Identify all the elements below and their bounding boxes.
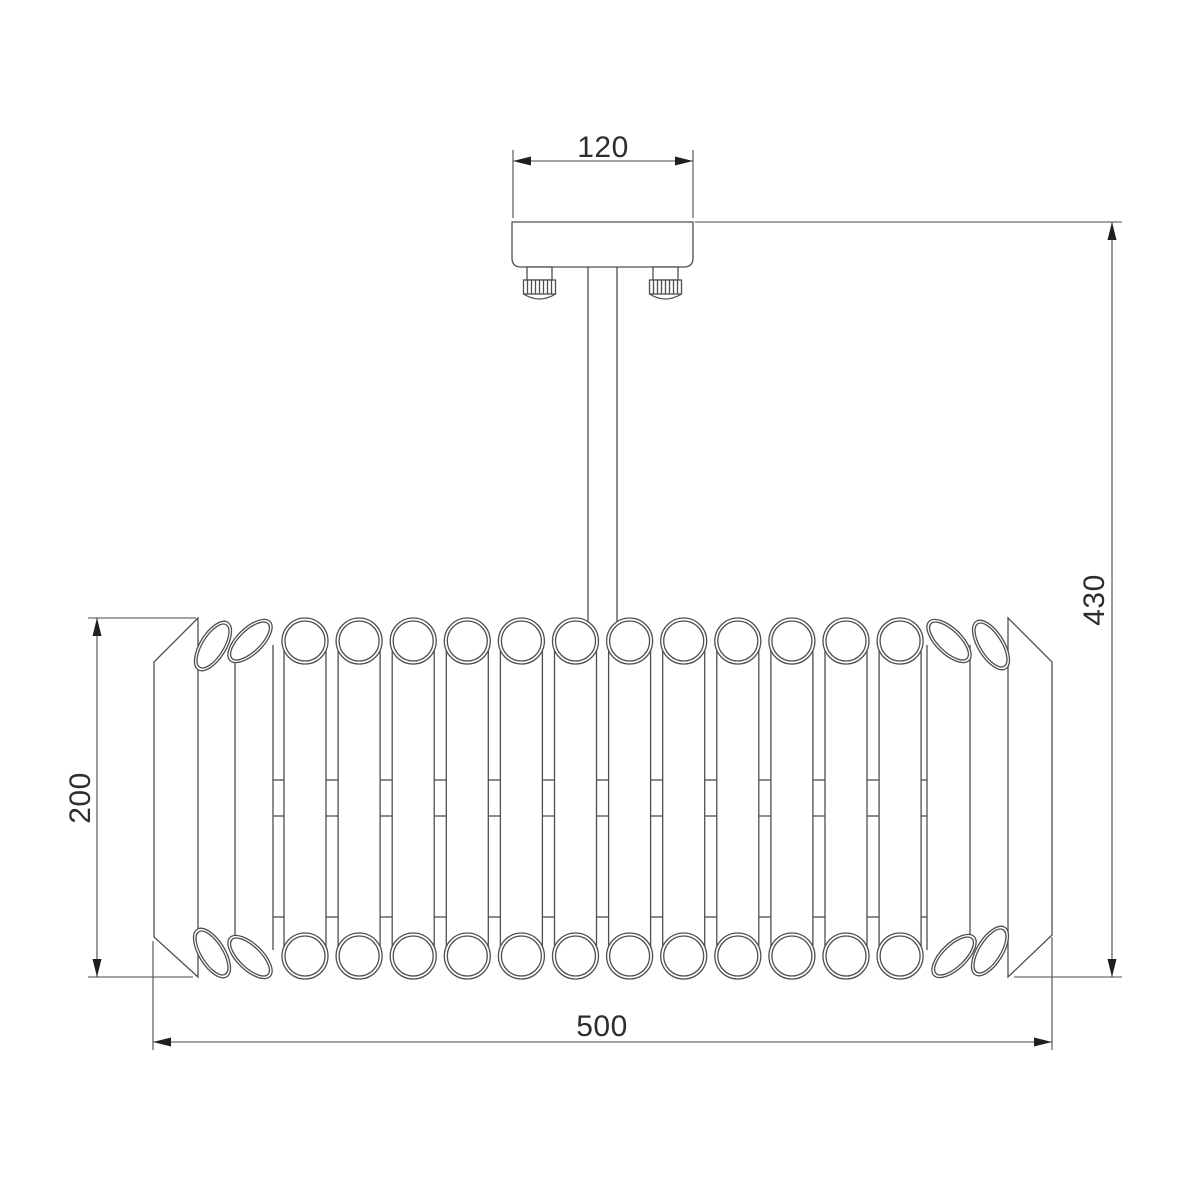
- tilted-bottom-rim-outer: [221, 928, 279, 986]
- crystal-shade-body: [154, 612, 1052, 986]
- tube-bottom-rim-outer: [607, 933, 653, 979]
- tube-top-rim-outer: [498, 618, 544, 664]
- tube-bottom-rim-outer: [823, 933, 869, 979]
- tube-bottom-rim-outer: [498, 933, 544, 979]
- tube-top-rim-outer: [769, 618, 815, 664]
- screw-cap-bottom: [524, 294, 556, 299]
- chandelier-dimension-drawing: 120 430 200 500: [0, 0, 1200, 1200]
- dimension-label-body-height: 200: [64, 772, 97, 824]
- tube-bottom-rim-outer: [282, 933, 328, 979]
- tube-bottom-rim-outer: [444, 933, 490, 979]
- dimension-lines: [88, 150, 1122, 1050]
- dimension-arrowhead: [1108, 222, 1117, 240]
- dimension-arrowhead: [675, 157, 693, 166]
- dimension-label-total-height: 430: [1078, 574, 1111, 626]
- screw-neck: [527, 267, 552, 280]
- dimension-label-canopy-width: 120: [577, 131, 629, 164]
- screw-cap-bottom: [650, 294, 682, 299]
- tube-top-rim-outer: [553, 618, 599, 664]
- mounting-screw: [524, 267, 556, 299]
- tube-bottom-rim-outer: [390, 933, 436, 979]
- tube-top-rim-outer: [336, 618, 382, 664]
- tube-top-rim-outer: [390, 618, 436, 664]
- screw-neck: [653, 267, 678, 280]
- side-panel-left: [154, 618, 198, 977]
- side-panel-right: [1008, 618, 1052, 977]
- tube-top-rim-outer: [607, 618, 653, 664]
- ceiling-canopy: [512, 222, 693, 267]
- technical-drawing-svg: 120 430 200 500: [0, 0, 1200, 1200]
- dimension-arrowhead: [1034, 1038, 1052, 1047]
- canopy-plate: [512, 222, 693, 267]
- tube-top-rim-outer: [444, 618, 490, 664]
- dimension-arrowhead: [153, 1038, 171, 1047]
- tube-bottom-rim-outer: [769, 933, 815, 979]
- dimension-arrowhead: [1108, 959, 1117, 977]
- tube-top-rim-outer: [715, 618, 761, 664]
- tube-bottom-rim-outer: [877, 933, 923, 979]
- tube-top-rim-outer: [823, 618, 869, 664]
- tube-bottom-rim-outer: [715, 933, 761, 979]
- tube-bottom-rim-outer: [553, 933, 599, 979]
- tube-top-rim-outer: [661, 618, 707, 664]
- stem-rod: [588, 267, 617, 640]
- tube-top-rim-outer: [282, 618, 328, 664]
- mounting-screws: [524, 267, 682, 299]
- dimension-arrowhead: [93, 618, 102, 636]
- dimension-arrowhead: [93, 959, 102, 977]
- dimension-label-body-width: 500: [576, 1010, 628, 1043]
- dimension-arrowhead: [513, 157, 531, 166]
- tube-bottom-rim-outer: [336, 933, 382, 979]
- tube-top-rim-outer: [877, 618, 923, 664]
- tube-bottom-rim-outer: [661, 933, 707, 979]
- mounting-screw: [650, 267, 682, 299]
